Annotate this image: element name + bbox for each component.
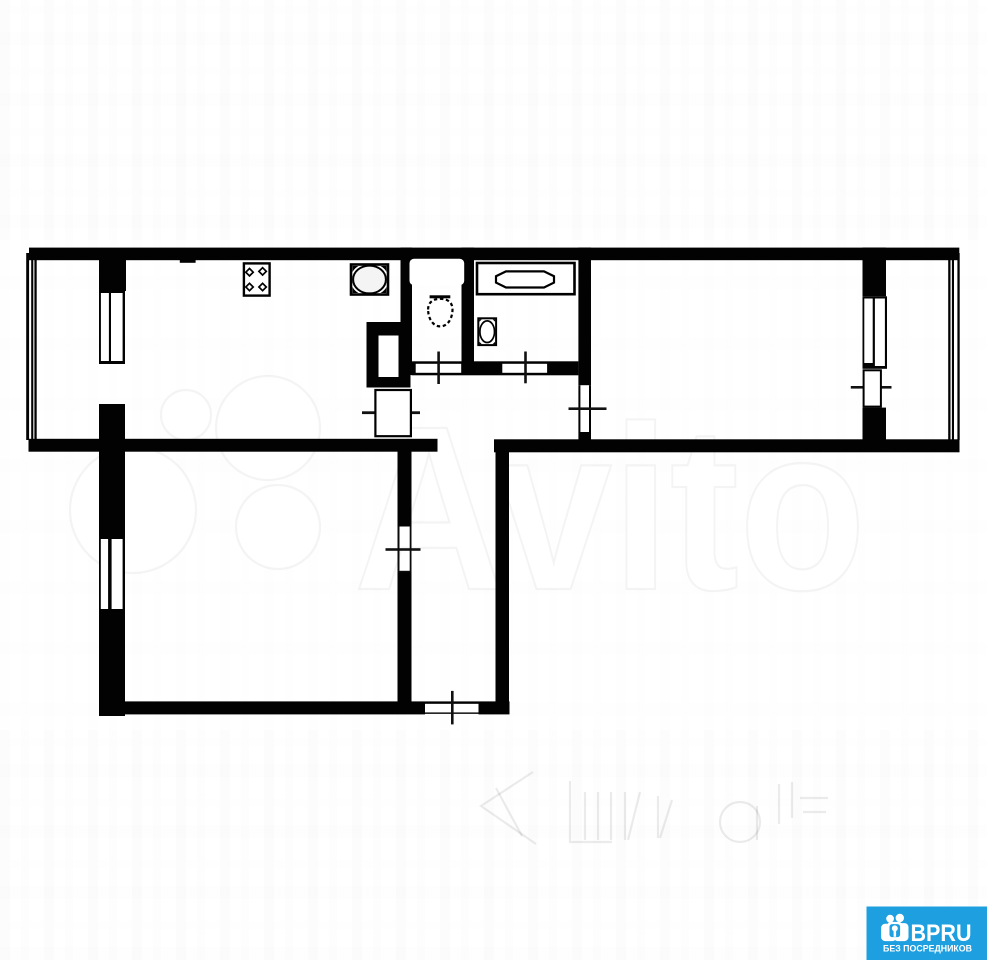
svg-text:Avito: Avito bbox=[354, 377, 866, 639]
svg-text:БЕЗ ПОСРЕДНИКОВ: БЕЗ ПОСРЕДНИКОВ bbox=[883, 944, 972, 955]
